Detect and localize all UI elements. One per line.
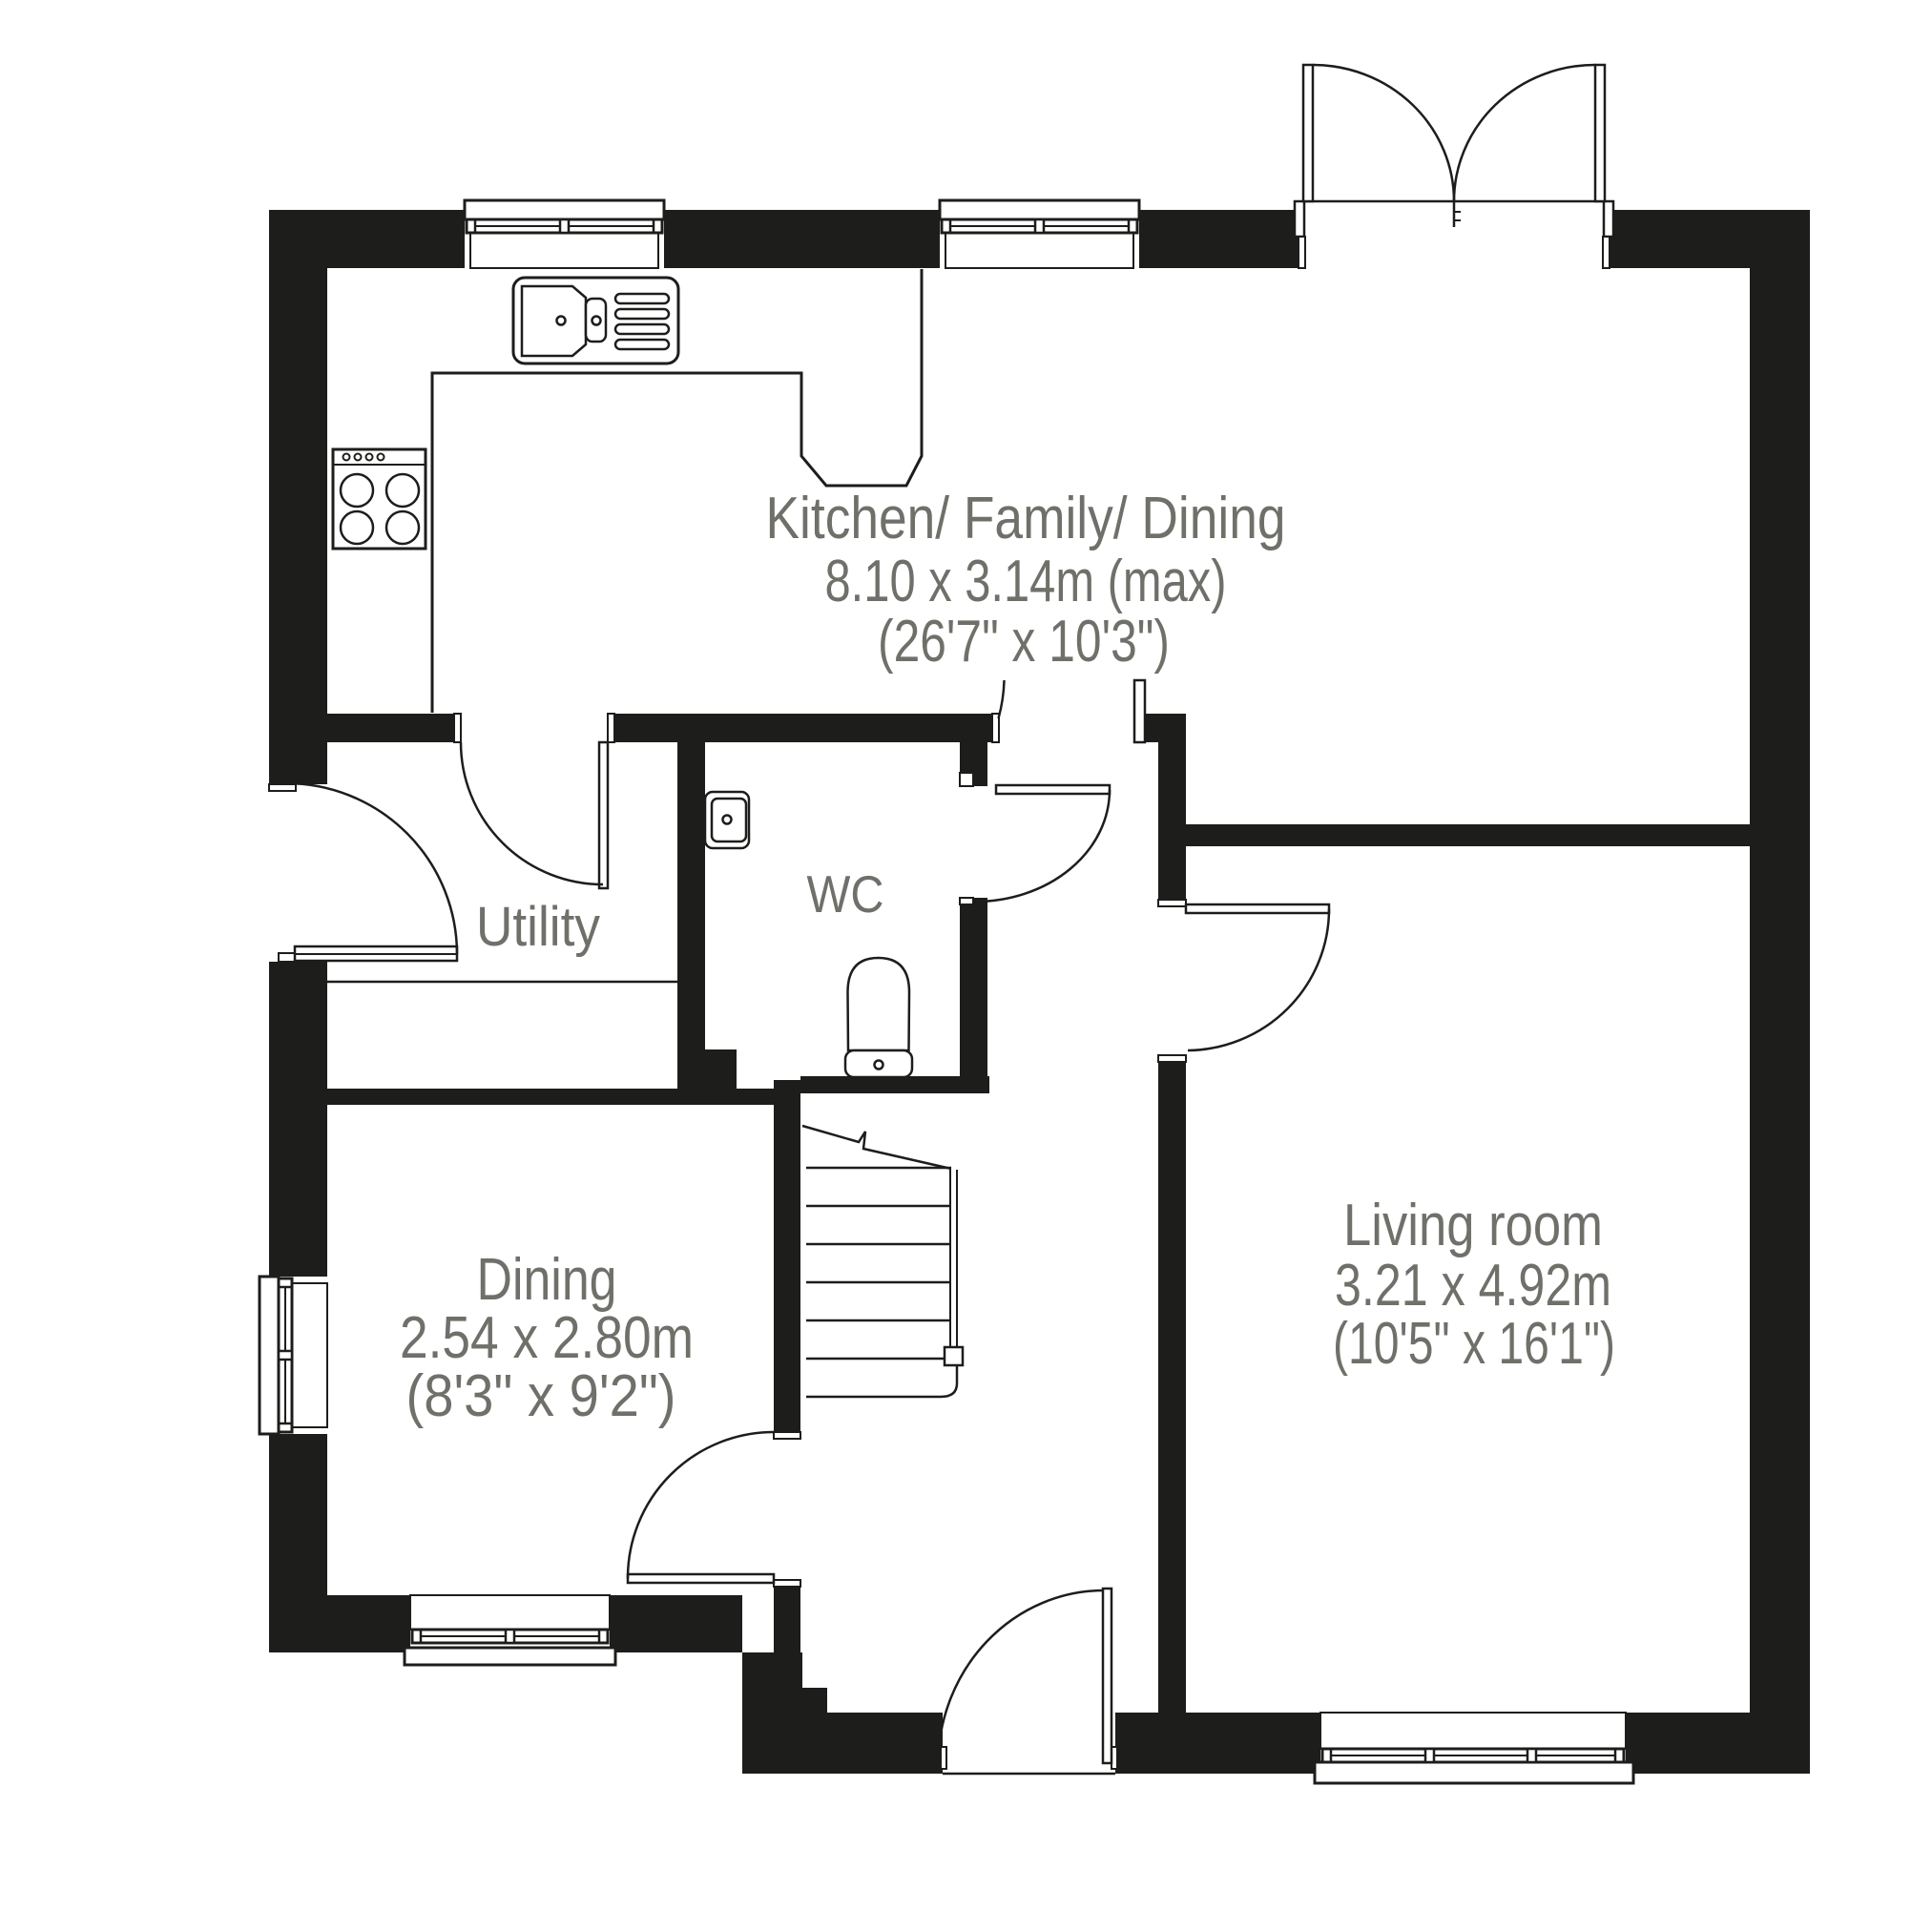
svg-text:Dining: Dining <box>477 1247 617 1313</box>
svg-text:(26'7" x 10'3"): (26'7" x 10'3") <box>878 609 1170 675</box>
svg-text:3.21 x 4.92m: 3.21 x 4.92m <box>1335 1253 1611 1319</box>
svg-text:(8'3" x 9'2"): (8'3" x 9'2") <box>406 1363 676 1429</box>
svg-text:(10'5" x 16'1"): (10'5" x 16'1") <box>1333 1311 1615 1377</box>
svg-text:Kitchen/ Family/ Dining: Kitchen/ Family/ Dining <box>766 486 1286 551</box>
svg-text:WC: WC <box>807 864 884 924</box>
svg-text:8.10 x 3.14m (max): 8.10 x 3.14m (max) <box>825 549 1227 614</box>
svg-text:2.54 x 2.80m: 2.54 x 2.80m <box>400 1305 694 1371</box>
svg-text:Utility: Utility <box>476 896 600 958</box>
svg-text:Living room: Living room <box>1343 1193 1603 1258</box>
